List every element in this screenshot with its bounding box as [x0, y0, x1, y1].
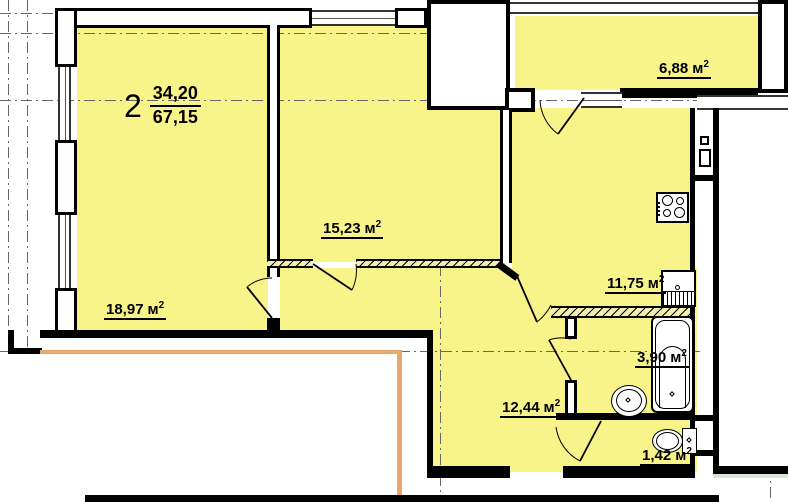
boundary-line [40, 350, 402, 354]
wall-segment [55, 140, 77, 215]
floor-plan: 2 34,20 67,15 18,97м2 15,23м2 6,88м2 11,… [0, 0, 788, 502]
wall-band [697, 95, 788, 110]
room-area-unit: м [365, 220, 376, 237]
kitchen-left-wall [500, 110, 512, 263]
window [312, 10, 395, 26]
room-label-hallway: 12,44м2 [500, 400, 562, 418]
apartment-label: 2 34,20 67,15 [124, 84, 201, 128]
room-label-bedroom: 15,23м2 [321, 221, 383, 239]
shaft-cap [693, 175, 715, 181]
room-area-value: 1,42 [642, 447, 671, 464]
sink-faucet [675, 285, 680, 290]
room-area-value: 15,23 [323, 220, 361, 237]
apartment-number: 2 [124, 90, 142, 122]
stove-burner [674, 207, 685, 218]
room-area-value: 6,88 [659, 60, 688, 77]
room-area-unit: м [675, 447, 686, 464]
balcony-fill [515, 16, 758, 90]
room-area-value: 18,97 [106, 301, 144, 318]
window [58, 215, 71, 288]
stove-icon [656, 192, 689, 223]
room-label-living: 18,97м2 [104, 302, 166, 320]
stove-burner [676, 197, 684, 205]
hall-bottom-wall [427, 466, 510, 478]
hall-left-wall [427, 336, 433, 472]
room-area-sup: 2 [159, 300, 165, 311]
room-label-balcony: 6,88м2 [657, 61, 711, 79]
step-wall [8, 348, 42, 354]
room-area-sup: 2 [703, 59, 709, 70]
wall-column [427, 0, 510, 110]
room-area-unit: м [648, 275, 659, 292]
axis-line-v-left1 [8, 0, 9, 356]
axis-line-v-left2 [27, 0, 28, 356]
room-area-unit: м [148, 301, 159, 318]
stove-knobs [658, 202, 660, 218]
room-label-kitchen: 11,75м2 [605, 276, 666, 294]
balcony-rail [510, 2, 788, 14]
room-area-unit: м [544, 399, 555, 416]
sink-drainboard [663, 291, 694, 305]
window [58, 67, 71, 140]
room-area-value: 12,44 [502, 399, 540, 416]
partition-wall [267, 25, 280, 277]
vent-shaft-icon [700, 136, 709, 145]
outside-accent-strip [713, 474, 788, 478]
hallway-arm-fill [280, 268, 433, 330]
living-room-fill [77, 28, 268, 330]
living-area-value: 34,20 [150, 84, 201, 107]
vent-shaft-icon [699, 149, 711, 167]
hall-bottom-wall [563, 466, 695, 478]
wall-segment [395, 8, 427, 28]
stove-burner [663, 209, 671, 217]
room-area-sup: 2 [376, 219, 382, 230]
outer-bottom-band [85, 495, 719, 502]
room-area-unit: м [692, 60, 703, 77]
room-area-sup: 2 [686, 446, 692, 457]
room-area-sup: 2 [659, 274, 665, 285]
living-bottom-wall [40, 330, 433, 338]
total-area-value: 67,15 [150, 107, 201, 128]
apartment-area-fraction: 34,20 67,15 [150, 84, 201, 128]
niche [695, 421, 713, 450]
room-area-value: 11,75 [607, 275, 644, 292]
boundary-line [397, 352, 402, 497]
wall-pier [758, 0, 788, 93]
wall-stub [505, 88, 535, 112]
room-label-bathroom: 3,90м2 [635, 350, 689, 368]
room-label-wc: 1,42м2 [640, 448, 694, 466]
wall-segment [55, 8, 77, 67]
thin-wall [267, 259, 313, 268]
room-area-sup: 2 [681, 348, 687, 359]
room-area-value: 3,90 [637, 349, 666, 366]
bathroom-wall-stub [565, 316, 577, 339]
room-area-sup: 2 [555, 398, 561, 409]
room-area-unit: м [670, 349, 681, 366]
stove-burner [662, 195, 673, 206]
axis-line-h-mid [0, 100, 788, 101]
thin-wall [356, 259, 505, 268]
right-bottom-wall [713, 466, 788, 474]
window [581, 92, 622, 108]
